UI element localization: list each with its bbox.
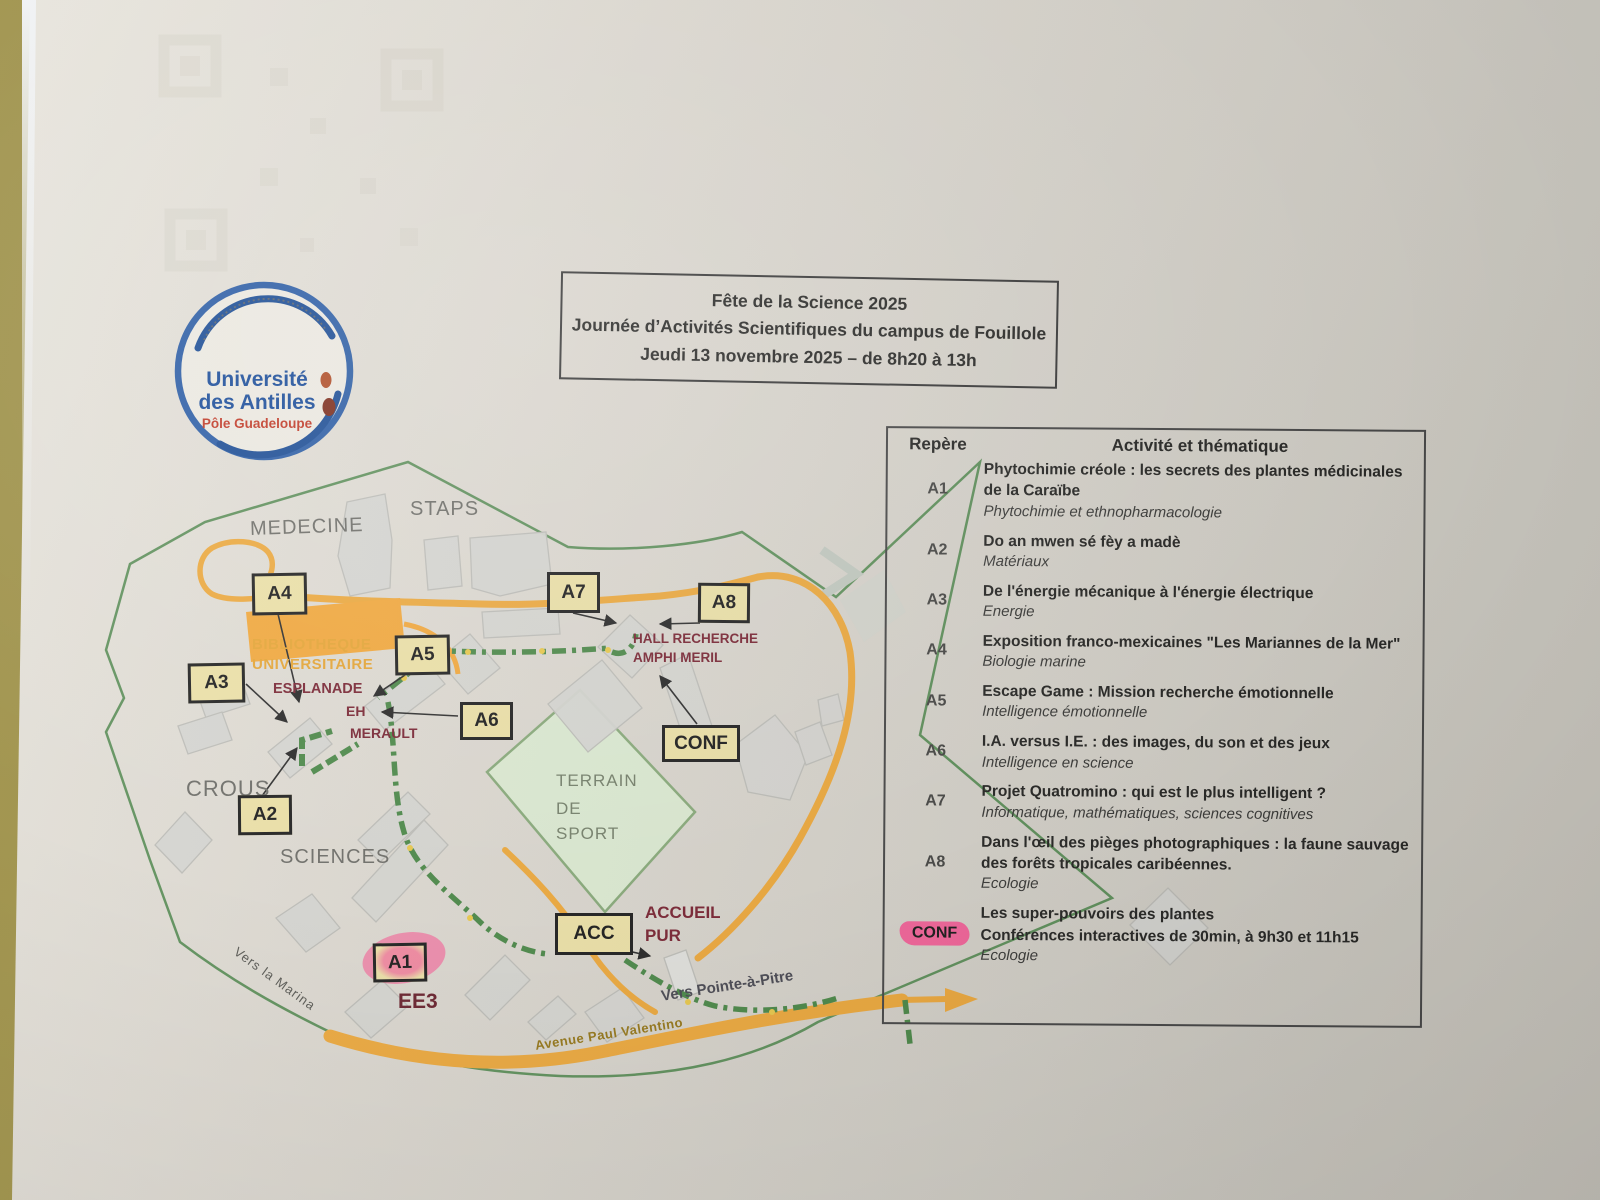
row-label: A8 <box>889 831 981 894</box>
table-row-a7: A7 Projet Quatromino : qui est le plus i… <box>889 781 1413 826</box>
row-label: A3 <box>891 580 983 622</box>
table-row-a4: A4 Exposition franco-mexicaines "Les Mar… <box>890 630 1414 675</box>
row-title: Escape Game : Mission recherche émotionn… <box>982 681 1414 705</box>
row-theme: Intelligence en science <box>982 752 1414 775</box>
map-label-hall-recherche: HALL RECHERCHE <box>633 631 758 646</box>
map-badge-a3: A3 <box>188 663 246 704</box>
table-header-repere: Repère <box>892 434 984 455</box>
row-title: Phytochimie créole : les secrets des pla… <box>984 459 1416 505</box>
map-badge-a2: A2 <box>238 795 292 835</box>
map-label-terrain-2: DE <box>556 799 582 819</box>
map-badge-a1: A1 <box>373 943 428 983</box>
map-label-pur: PUR <box>645 926 681 946</box>
map-badge-a5: A5 <box>395 635 451 676</box>
map-badge-conf: CONF <box>662 725 740 762</box>
table-row-a3: A3 De l'énergie mécanique à l'énergie él… <box>891 580 1415 625</box>
table-row-a1: A1 Phytochimie créole : les secrets des … <box>891 458 1415 524</box>
row-label: A1 <box>891 458 983 521</box>
row-theme: Matériaux <box>983 552 1415 575</box>
row-label: A4 <box>890 630 982 672</box>
map-label-medecine: MEDECINE <box>250 514 364 541</box>
row-theme: Ecologie <box>980 946 1412 969</box>
row-theme: Phytochimie et ethnopharmacologie <box>983 502 1415 525</box>
map-label-terrain-3: SPORT <box>556 824 619 844</box>
row-title: Do an mwen sé fèy a madè <box>983 530 1415 554</box>
row-subtitle: Conférences interactives de 30min, à 9h3… <box>980 924 1412 948</box>
table-row-a6: A6 I.A. versus I.E. : des images, du son… <box>890 730 1414 775</box>
map-label-eh: EH <box>346 703 365 719</box>
row-theme: Informatique, mathématiques, sciences co… <box>981 803 1413 826</box>
row-title: Dans l'œil des pièges photographiques : … <box>981 831 1413 877</box>
map-badge-a7: A7 <box>547 572 600 613</box>
map-badge-a6: A6 <box>460 702 513 740</box>
photo-of-document: Université des Antilles Pôle Guadeloupe … <box>0 0 1600 1200</box>
row-label: A2 <box>891 530 983 572</box>
row-title: Exposition franco-mexicaines "Les Marian… <box>983 631 1415 655</box>
table-header: Repère Activité et thématique <box>892 434 1416 458</box>
row-theme: Intelligence émotionnelle <box>982 702 1414 725</box>
map-label-esplanade: ESPLANADE <box>273 681 362 697</box>
activities-table: Repère Activité et thématique A1 Phytoch… <box>882 426 1426 1028</box>
map-chevron <box>822 550 856 596</box>
table-row-conf: CONF Les super-pouvoirs des plantes Conf… <box>888 902 1412 968</box>
map-badge-a4: A4 <box>252 573 308 616</box>
map-label-sciences: SCIENCES <box>280 846 390 869</box>
row-label: CONF <box>888 902 980 965</box>
table-row-a8: A8 Dans l'œil des pièges photographiques… <box>889 831 1413 897</box>
conf-highlight: CONF <box>900 922 969 946</box>
table-row-a2: A2 Do an mwen sé fèy a madè Matériaux <box>891 530 1415 575</box>
row-label: A5 <box>890 680 982 722</box>
table-header-activite: Activité et thématique <box>984 435 1416 458</box>
map-label-merault: MERAULT <box>350 725 417 741</box>
map-label-bibliotheque-2: UNIVERSITAIRE <box>252 656 373 673</box>
row-label: A6 <box>890 730 982 772</box>
row-title: Les super-pouvoirs des plantes <box>981 903 1413 927</box>
row-title: I.A. versus I.E. : des images, du son et… <box>982 731 1414 755</box>
map-label-terrain-1: TERRAIN <box>556 771 638 791</box>
map-label-amphi-meril: AMPHI MERIL <box>633 650 722 665</box>
map-label-ee3: EE3 <box>398 990 438 1014</box>
row-theme: Energie <box>983 602 1415 625</box>
map-label-staps: STAPS <box>410 498 479 521</box>
row-title: De l'énergie mécanique à l'énergie élect… <box>983 581 1415 605</box>
row-label: A7 <box>889 781 981 823</box>
map-badge-acc: ACC <box>555 913 633 955</box>
row-theme: Ecologie <box>981 874 1413 897</box>
map-badge-a8: A8 <box>698 583 750 623</box>
row-theme: Biologie marine <box>982 652 1414 675</box>
table-row-a5: A5 Escape Game : Mission recherche émoti… <box>890 680 1414 725</box>
row-title: Projet Quatromino : qui est le plus inte… <box>981 781 1413 805</box>
map-label-accueil: ACCUEIL <box>645 903 721 923</box>
map-label-bibliotheque-1: BIBLIOTHEQUE <box>252 636 371 653</box>
